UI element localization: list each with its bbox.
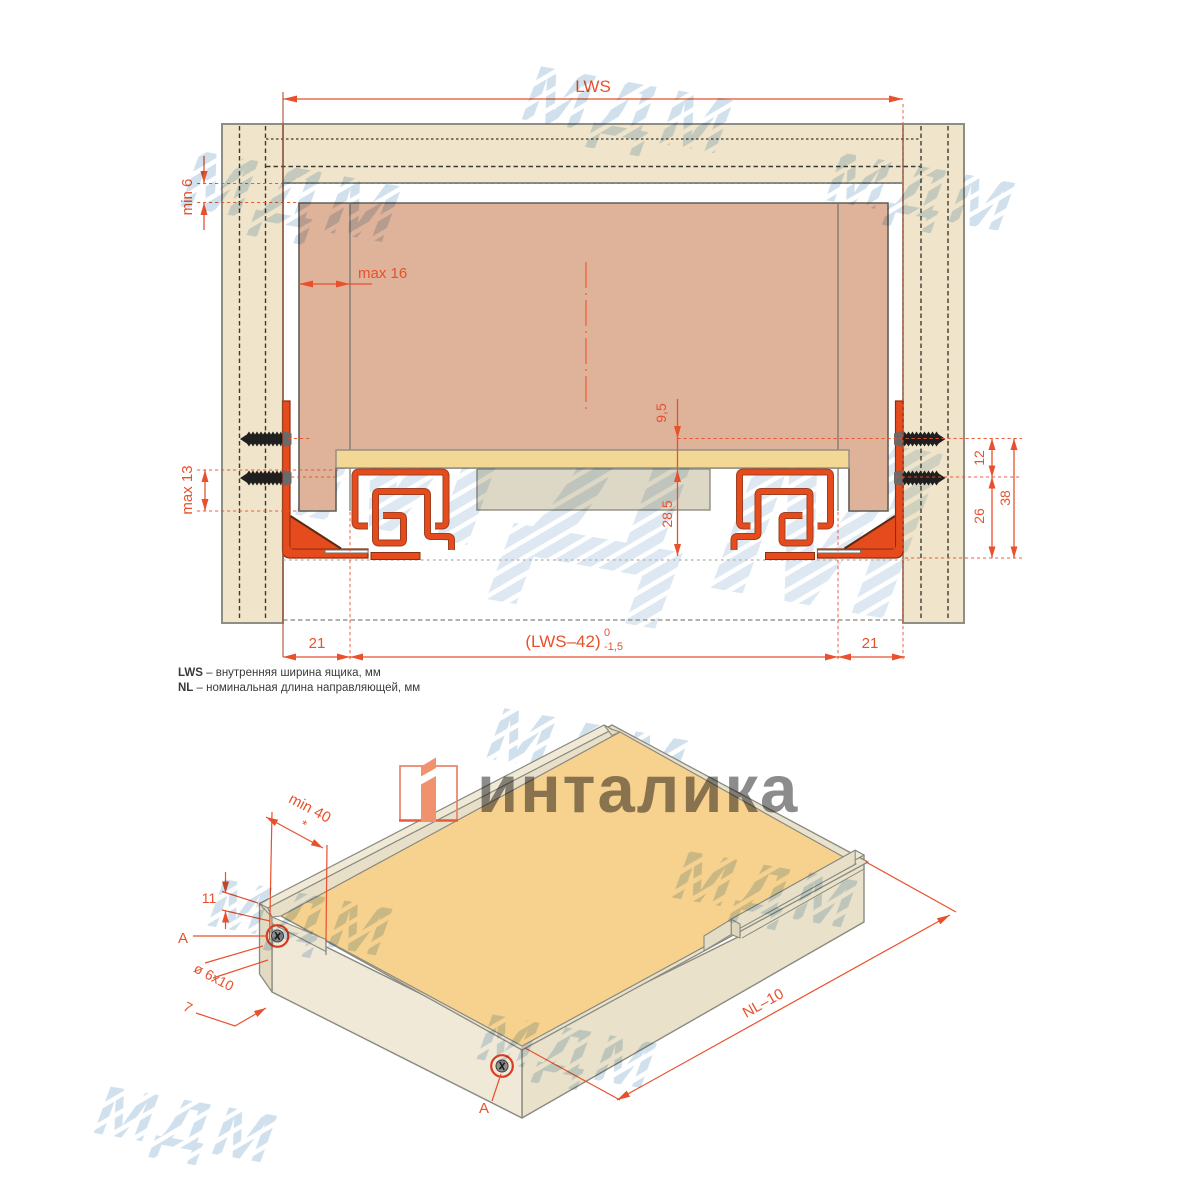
svg-text:NL – номинальная длина направл: NL – номинальная длина направляющей, мм bbox=[178, 682, 420, 694]
svg-text:28,5: 28,5 bbox=[659, 500, 675, 527]
svg-text:инталика: инталика bbox=[477, 752, 799, 827]
svg-text:9,5: 9,5 bbox=[653, 403, 669, 423]
svg-text:21: 21 bbox=[309, 635, 326, 652]
svg-text:A: A bbox=[479, 1100, 489, 1117]
svg-text:38: 38 bbox=[997, 490, 1013, 506]
svg-text:МДМ: МДМ bbox=[84, 1071, 293, 1178]
svg-text:ø 6x10: ø 6x10 bbox=[191, 960, 236, 994]
svg-text:7: 7 bbox=[181, 998, 196, 1016]
svg-text:min 40: min 40 bbox=[286, 790, 334, 826]
svg-text:21: 21 bbox=[862, 635, 879, 652]
svg-text:max 16: max 16 bbox=[358, 265, 407, 282]
svg-text:26: 26 bbox=[971, 508, 987, 524]
svg-text:max 13: max 13 bbox=[179, 465, 196, 514]
svg-text:LWS – внутренняя ширина ящика,: LWS – внутренняя ширина ящика, мм bbox=[178, 667, 381, 679]
svg-text:-1,5: -1,5 bbox=[604, 641, 623, 653]
svg-text:*: * bbox=[298, 817, 310, 833]
svg-text:(LWS–42): (LWS–42) bbox=[525, 632, 600, 651]
svg-text:0: 0 bbox=[604, 627, 610, 639]
svg-text:A: A bbox=[178, 930, 188, 947]
svg-text:12: 12 bbox=[971, 450, 987, 466]
svg-text:NL–10: NL–10 bbox=[740, 985, 787, 1021]
